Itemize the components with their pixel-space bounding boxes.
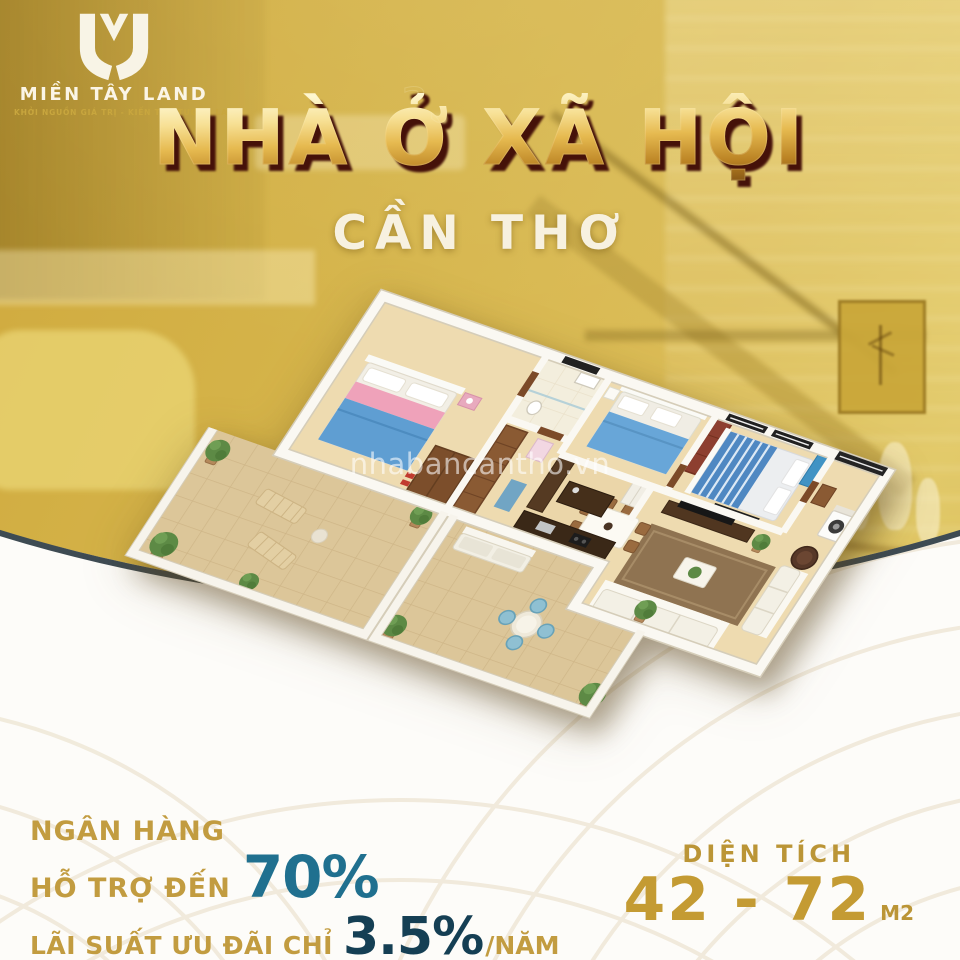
poster-page: MIỀN TÂY LAND KHỞI NGUỒN GIÁ TRỊ - KIẾN … [0,0,960,960]
poster-title: NHÀ Ở XÃ HỘI NHÀ Ở XÃ HỘI [0,100,960,176]
poster-subtitle: CẦN THƠ [0,206,960,261]
floor-plan-3d [55,248,920,813]
promo-bank-line: NGÂN HÀNG [30,816,225,847]
title-text: NHÀ Ở XÃ HỘI [153,93,807,182]
promo-rate-value: 3.5% [343,907,483,960]
area-block: DIỆN TÍCH 42 - 72 M2 [624,840,915,930]
area-unit: M2 [880,901,914,925]
area-value: 42 - 72 [624,870,872,930]
promo-support-prefix: HỖ TRỢ ĐẾN [30,873,231,904]
promo-rate-suffix: /NĂM [485,931,559,960]
promo-support-value: 70% [243,843,379,911]
bank-promo-block: NGÂN HÀNG HỖ TRỢ ĐẾN 70% LÃI SUẤT ƯU ĐÃI… [30,816,559,960]
area-label: DIỆN TÍCH [624,840,915,868]
watermark-text: nhabancantho.vn [0,447,960,481]
butterfly-m-monogram-icon [65,8,163,82]
promo-rate-prefix: LÃI SUẤT ƯU ĐÃI CHỈ [30,931,333,960]
